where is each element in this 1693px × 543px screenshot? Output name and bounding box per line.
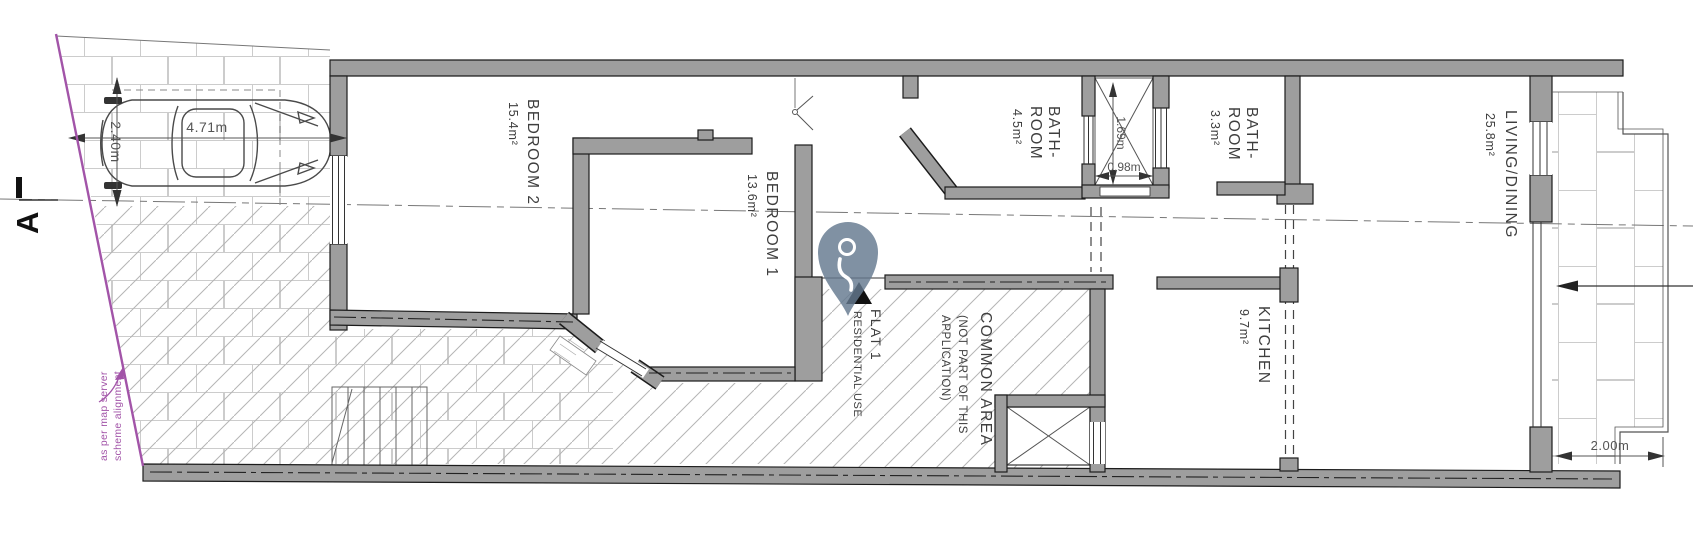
living-dining-area: 25.8m² bbox=[1483, 113, 1497, 157]
bedroom1-label: BEDROOM 1 bbox=[763, 171, 780, 278]
balcony-area bbox=[1552, 92, 1663, 464]
common-area-label: COMMON AREA bbox=[977, 312, 994, 446]
balcony-width-text: 2.00m bbox=[1591, 438, 1630, 453]
bedroom2-area: 15.4m² bbox=[506, 102, 520, 146]
common-area-note1: (NOT PART OF THIS bbox=[956, 315, 968, 434]
flat1-sublabel: RESIDENTIAL USE bbox=[851, 311, 863, 417]
floor-plan-svg: 4.71m 2.40m 1.69m 0.98m 2.00m A bbox=[0, 0, 1693, 543]
bedroom1-area: 13.6m² bbox=[745, 174, 759, 218]
shaft-depth-text: 1.69m bbox=[1114, 116, 1128, 149]
shaft-width-text: 0.98m bbox=[1107, 160, 1140, 174]
kitchen-area: 9.7m² bbox=[1237, 309, 1251, 345]
bedroom2-label: BEDROOM 2 bbox=[524, 99, 541, 206]
boundary-note-line1: scheme alignment bbox=[112, 371, 124, 461]
section-marker-letter: A bbox=[10, 212, 45, 234]
flat1-label: FLAT 1 bbox=[868, 309, 884, 361]
section-marker: A bbox=[10, 177, 58, 234]
living-dining-label: LIVING/DINING bbox=[1502, 110, 1519, 239]
bathroom2-label-line1: BATH- bbox=[1243, 107, 1260, 160]
bathroom1-label-line1: BATH- bbox=[1045, 106, 1062, 159]
bathroom2-area: 3.3m² bbox=[1208, 110, 1222, 146]
bathroom1-label-line2: ROOM bbox=[1027, 106, 1044, 160]
door-swing-symbol bbox=[793, 78, 814, 130]
parking-width-text: 2.40m bbox=[108, 121, 124, 162]
yard-area bbox=[93, 206, 822, 464]
boundary-note-line2: as per map server bbox=[98, 371, 110, 461]
kitchen-label: KITCHEN bbox=[1255, 306, 1272, 385]
bathroom2-label-line2: ROOM bbox=[1225, 107, 1242, 161]
parking-length-text: 4.71m bbox=[186, 119, 227, 135]
floor-plan: 4.71m 2.40m 1.69m 0.98m 2.00m A bbox=[0, 0, 1693, 543]
common-area-note2: APPLICATION) bbox=[939, 315, 951, 401]
bathroom1-area: 4.5m² bbox=[1010, 109, 1024, 145]
lift-shaft bbox=[1007, 407, 1090, 465]
